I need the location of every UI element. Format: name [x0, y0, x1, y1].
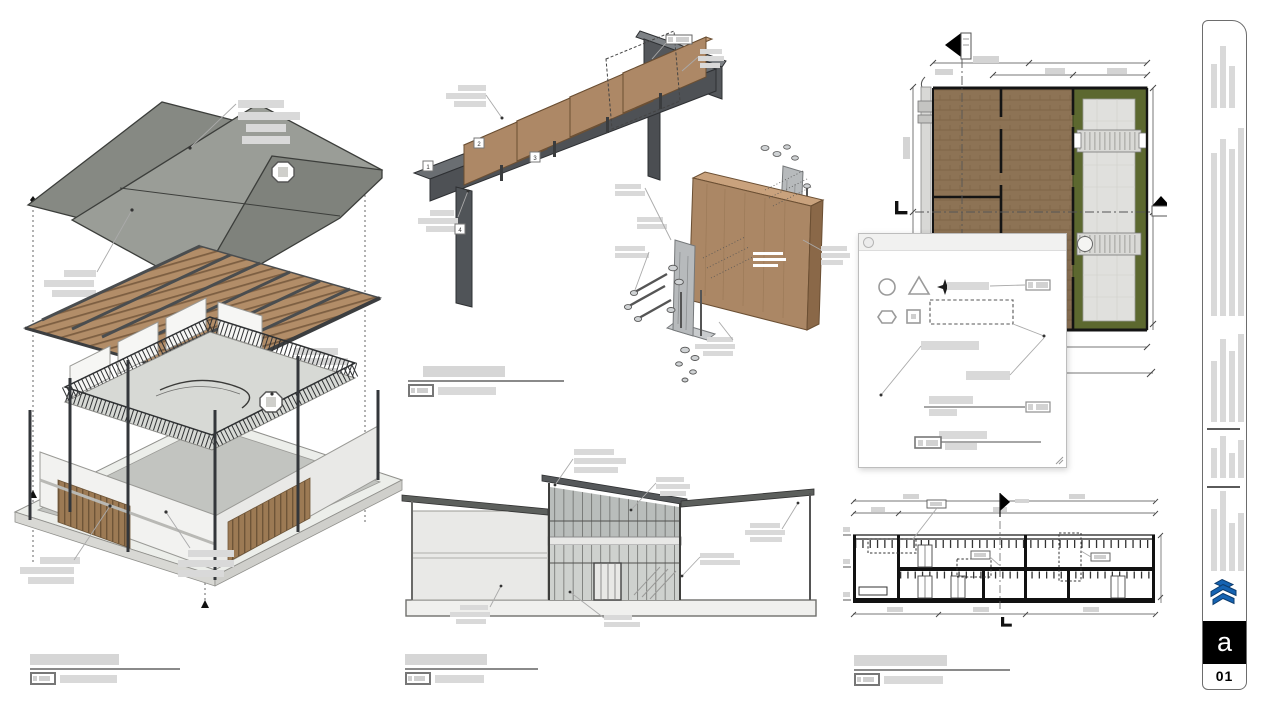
sidebar-thumbnail-bar[interactable]	[1220, 339, 1226, 422]
dialog-ref-box-2	[1026, 402, 1050, 412]
sidebar-divider	[1207, 428, 1240, 430]
elevation-door	[594, 563, 621, 600]
brand-logo-box: a	[1203, 621, 1246, 664]
dialog-ref-box-1	[1026, 280, 1050, 290]
layout-sheet: 1 2 3 4	[0, 0, 1262, 708]
drawing-number-box	[30, 672, 56, 685]
callout-4[interactable]: 4	[455, 224, 465, 234]
sidebar-thumbnail-bar[interactable]	[1211, 153, 1217, 316]
titleblock-bottom-middle[interactable]	[405, 654, 540, 685]
elevation-left-wing	[402, 495, 548, 600]
section-label-boxes	[913, 500, 1110, 565]
dialog-ref-box-3	[915, 437, 941, 448]
roof-callout-hexagon[interactable]	[272, 162, 294, 182]
drawing-number-box	[854, 673, 880, 686]
sidebar-thumbnail-bar[interactable]	[1229, 351, 1235, 422]
dialog-greek	[947, 282, 989, 290]
annotation-dialog[interactable]	[858, 233, 1067, 468]
sidebar-thumbnail-bar[interactable]	[1229, 66, 1235, 108]
dialog-dashed-box	[930, 300, 1013, 324]
callout-1[interactable]: 1	[423, 161, 433, 171]
sidebar-thumbnail-bar[interactable]	[1238, 334, 1244, 422]
sidebar-thumbnail-bar[interactable]	[1229, 149, 1235, 316]
titleblock-bottom-right[interactable]	[854, 655, 1012, 686]
section-viewport[interactable]	[843, 487, 1168, 627]
plan-courtyard	[1073, 87, 1147, 330]
elevation-viewport[interactable]	[398, 445, 823, 635]
square-shape-icon[interactable]	[907, 310, 920, 323]
brand-logo-letter: a	[1217, 627, 1232, 658]
sidebar-panel[interactable]: a 01	[1202, 20, 1247, 690]
sidebar-thumbnail-bar[interactable]	[1220, 436, 1226, 478]
hexagon-shape-icon[interactable]	[878, 311, 896, 323]
sidebar-thumbnail-bar[interactable]	[1220, 139, 1226, 316]
dialog-resize-handle[interactable]	[1055, 456, 1064, 465]
circle-shape-icon[interactable]	[879, 279, 895, 295]
sidebar-thumbnail-bar[interactable]	[1238, 128, 1244, 316]
callout-2[interactable]: 2	[474, 138, 484, 148]
sidebar-thumbnail-bar[interactable]	[1211, 448, 1217, 478]
sidebar-thumbnail-bar[interactable]	[1238, 513, 1244, 571]
titleblock-beam-detail[interactable]	[408, 366, 566, 397]
section-l-mark	[1001, 617, 1012, 627]
dialog-greek	[929, 409, 957, 416]
elevation-marker-right[interactable]	[1152, 196, 1167, 216]
plan-l-mark	[895, 201, 907, 214]
panel-fastener-viewport[interactable]	[615, 140, 850, 385]
dialog-greek	[929, 396, 973, 404]
sketchup-logo-icon	[1208, 573, 1239, 615]
elevation-right-wing	[681, 489, 814, 600]
dialog-close-button[interactable]	[863, 237, 874, 248]
sidebar-thumbnail-bar[interactable]	[1220, 46, 1226, 108]
exploded-axon-viewport[interactable]	[10, 60, 410, 650]
dialog-title-bar[interactable]	[859, 234, 1066, 251]
sidebar-thumbnail-bar[interactable]	[1229, 453, 1235, 478]
titleblock-bottom-left[interactable]	[30, 654, 182, 685]
dialog-greek	[966, 371, 1010, 380]
drawing-number-box	[405, 672, 431, 685]
drawing-number-box	[408, 384, 434, 397]
section-building	[853, 521, 1155, 609]
dialog-greek	[945, 443, 977, 450]
sidebar-thumbnail-bar[interactable]	[1211, 64, 1217, 108]
callout-3[interactable]: 3	[530, 152, 540, 162]
section-marker-top[interactable]	[945, 33, 971, 59]
wood-panel	[689, 172, 823, 330]
dialog-greek	[939, 431, 987, 439]
sidebar-thumbnail-bar[interactable]	[1238, 440, 1244, 478]
sidebar-divider	[1207, 486, 1240, 488]
sidebar-thumbnail-bar[interactable]	[1211, 361, 1217, 422]
sidebar-thumbnail-bar[interactable]	[1229, 523, 1235, 571]
triangle-shape-icon[interactable]	[909, 277, 929, 294]
page-number: 01	[1203, 664, 1246, 688]
sidebar-thumbnail-bar[interactable]	[1211, 509, 1217, 571]
sidebar-thumbnail-bar[interactable]	[1220, 491, 1226, 571]
dialog-greek	[921, 341, 979, 350]
